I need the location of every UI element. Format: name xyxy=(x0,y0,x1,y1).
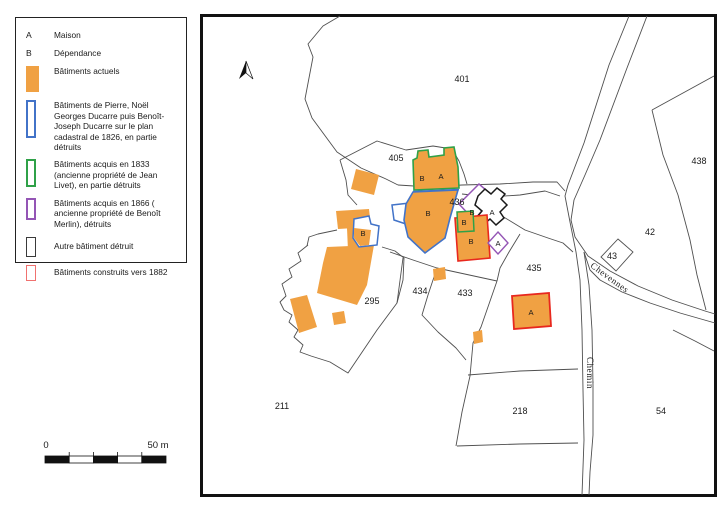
parcel-label-43: 43 xyxy=(607,251,617,261)
parcel-label-405: 405 xyxy=(388,153,403,163)
parcel-label-218: 218 xyxy=(512,406,527,416)
building-label-merlin-b: B xyxy=(469,208,474,217)
parcel-label-434: 434 xyxy=(412,286,427,296)
building-orange-tiny-433 xyxy=(473,330,483,344)
parcel-label-42: 42 xyxy=(645,227,655,237)
building-orange-tiny-434 xyxy=(433,267,446,281)
scale-bar: 0 50 m xyxy=(43,440,168,463)
scale-label-zero: 0 xyxy=(43,440,48,451)
building-label-green-b: B xyxy=(419,174,424,183)
scale-label-50m: 50 m xyxy=(147,440,168,451)
parcel-label-401: 401 xyxy=(454,74,469,84)
parcel-label-295: 295 xyxy=(364,296,379,306)
parcel-label-433: 433 xyxy=(457,288,472,298)
building-label-small-green-b: B xyxy=(461,218,466,227)
figure: A Maison B Dépendance Bâtiments actuels … xyxy=(0,0,728,515)
parcel-label-435: 435 xyxy=(526,263,541,273)
building-label-west-b: B xyxy=(360,229,365,238)
parcel-label-211: 211 xyxy=(275,401,289,411)
building-label-red-b: B xyxy=(468,237,473,246)
parcel-label-54: 54 xyxy=(656,406,666,416)
map-canvas: 401 405 436 438 42 43 435 434 433 295 21… xyxy=(0,0,728,515)
building-orange-small-square xyxy=(332,311,346,325)
parcel-label-438: 438 xyxy=(691,156,706,166)
parcel-label-436: 436 xyxy=(449,197,464,207)
road-label-chemin: Chemin xyxy=(585,357,595,389)
building-label-blue-b: B xyxy=(425,209,430,218)
